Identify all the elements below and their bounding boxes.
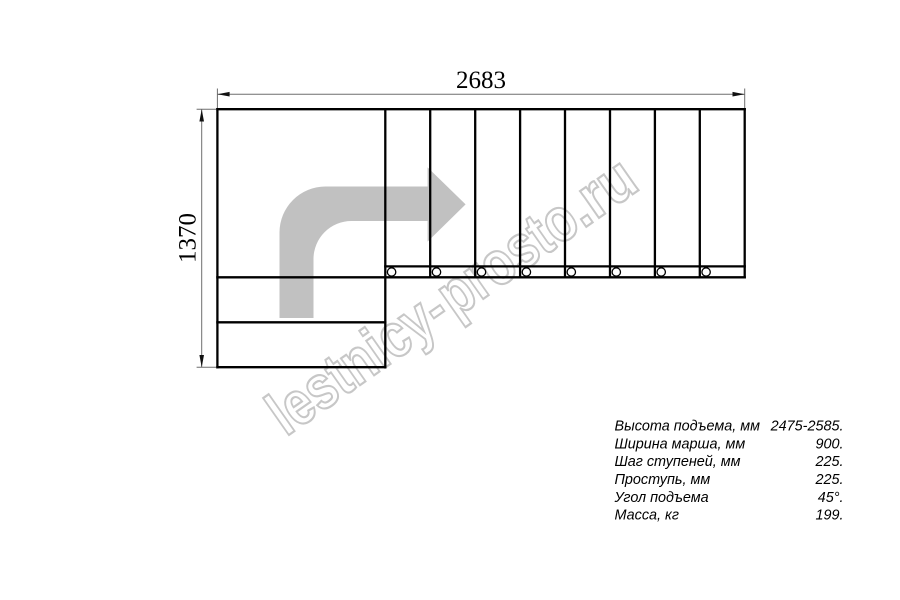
svg-text:Масса, кг: Масса, кг <box>615 508 679 524</box>
svg-text:225.: 225. <box>814 472 843 488</box>
svg-text:Шаг ступеней, мм: Шаг ступеней, мм <box>615 454 741 470</box>
svg-text:199.: 199. <box>815 508 843 524</box>
svg-text:900.: 900. <box>815 436 843 452</box>
svg-text:225.: 225. <box>814 454 843 470</box>
svg-text:Высота подъема, мм: Высота подъема, мм <box>615 418 761 434</box>
svg-text:Угол подъема: Угол подъема <box>614 490 709 506</box>
svg-text:45°.: 45°. <box>818 490 844 506</box>
svg-text:2475-2585.: 2475-2585. <box>770 418 844 434</box>
svg-text:Проступь, мм: Проступь, мм <box>615 472 711 488</box>
svg-text:2683: 2683 <box>456 67 506 94</box>
svg-text:1370: 1370 <box>175 213 202 263</box>
svg-text:Ширина марша, мм: Ширина марша, мм <box>615 436 746 452</box>
